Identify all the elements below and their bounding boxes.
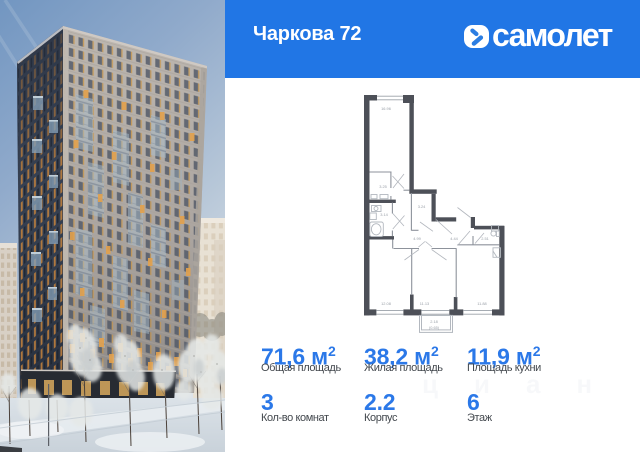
svg-text:4.44: 4.44 (450, 236, 458, 241)
svg-text:4.99: 4.99 (413, 236, 421, 241)
svg-text:12.08: 12.08 (381, 301, 391, 306)
svg-text:(0.65): (0.65) (429, 325, 440, 330)
svg-text:3.24: 3.24 (418, 204, 426, 209)
svg-text:2.18: 2.18 (430, 319, 438, 324)
svg-text:3.25: 3.25 (379, 184, 387, 189)
svg-text:11.13: 11.13 (420, 301, 429, 306)
svg-text:11.88: 11.88 (477, 301, 486, 306)
svg-text:3.14: 3.14 (380, 212, 388, 217)
svg-text:2.51: 2.51 (481, 236, 489, 241)
svg-text:16.96: 16.96 (381, 106, 391, 111)
